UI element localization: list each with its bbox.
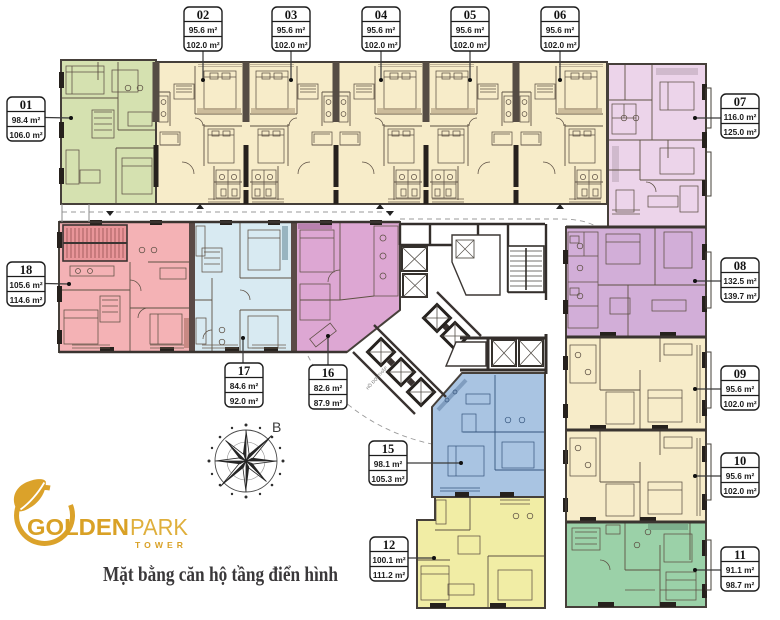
svg-text:125.0 m²: 125.0 m² bbox=[723, 127, 756, 137]
svg-text:102.0 m²: 102.0 m² bbox=[543, 40, 576, 50]
svg-text:02: 02 bbox=[197, 8, 210, 22]
svg-text:106.0 m²: 106.0 m² bbox=[9, 130, 42, 140]
svg-text:82.6 m²: 82.6 m² bbox=[314, 383, 343, 393]
svg-text:09: 09 bbox=[734, 367, 747, 381]
svg-text:102.0 m²: 102.0 m² bbox=[723, 486, 756, 496]
svg-text:102.0 m²: 102.0 m² bbox=[453, 40, 486, 50]
svg-text:98.1 m²: 98.1 m² bbox=[374, 459, 403, 469]
svg-text:102.0 m²: 102.0 m² bbox=[274, 40, 307, 50]
svg-text:100.1 m²: 100.1 m² bbox=[372, 555, 405, 565]
svg-text:87.9 m²: 87.9 m² bbox=[314, 398, 343, 408]
svg-text:91.1 m²: 91.1 m² bbox=[726, 565, 755, 575]
svg-text:95.6 m²: 95.6 m² bbox=[546, 25, 575, 35]
svg-text:95.6 m²: 95.6 m² bbox=[189, 25, 218, 35]
svg-text:B: B bbox=[272, 419, 281, 435]
svg-text:17: 17 bbox=[238, 364, 251, 378]
svg-text:95.6 m²: 95.6 m² bbox=[277, 25, 306, 35]
svg-text:15: 15 bbox=[382, 442, 395, 456]
svg-text:92.0 m²: 92.0 m² bbox=[230, 396, 259, 406]
svg-text:TOWER: TOWER bbox=[135, 540, 187, 550]
svg-text:07: 07 bbox=[734, 95, 747, 109]
svg-text:16: 16 bbox=[322, 366, 335, 380]
svg-text:10: 10 bbox=[734, 454, 747, 468]
svg-text:132.5 m²: 132.5 m² bbox=[723, 276, 756, 286]
svg-text:114.6 m²: 114.6 m² bbox=[10, 295, 43, 305]
svg-text:111.2 m²: 111.2 m² bbox=[373, 570, 406, 580]
svg-text:98.7 m²: 98.7 m² bbox=[726, 580, 755, 590]
svg-text:GOLDEN: GOLDEN bbox=[27, 514, 129, 540]
svg-text:95.6 m²: 95.6 m² bbox=[726, 471, 755, 481]
svg-text:PARK: PARK bbox=[130, 514, 189, 540]
svg-text:95.6 m²: 95.6 m² bbox=[456, 25, 485, 35]
svg-text:105.3 m²: 105.3 m² bbox=[371, 474, 404, 484]
svg-text:04: 04 bbox=[375, 8, 388, 22]
svg-text:18: 18 bbox=[20, 263, 33, 277]
svg-text:105.6 m²: 105.6 m² bbox=[9, 280, 42, 290]
svg-text:95.6 m²: 95.6 m² bbox=[726, 384, 755, 394]
svg-text:98.4 m²: 98.4 m² bbox=[12, 115, 41, 125]
svg-text:95.6 m²: 95.6 m² bbox=[367, 25, 396, 35]
svg-text:102.0 m²: 102.0 m² bbox=[364, 40, 397, 50]
svg-text:139.7 m²: 139.7 m² bbox=[723, 291, 756, 301]
svg-text:102.0 m²: 102.0 m² bbox=[723, 399, 756, 409]
svg-text:102.0 m²: 102.0 m² bbox=[186, 40, 219, 50]
svg-text:06: 06 bbox=[554, 8, 567, 22]
svg-text:08: 08 bbox=[734, 259, 747, 273]
svg-text:03: 03 bbox=[285, 8, 298, 22]
svg-text:12: 12 bbox=[383, 538, 396, 552]
svg-text:Mặt bằng căn hộ tầng điển hình: Mặt bằng căn hộ tầng điển hình bbox=[103, 562, 338, 586]
svg-text:84.6 m²: 84.6 m² bbox=[230, 381, 259, 391]
svg-text:11: 11 bbox=[734, 548, 746, 562]
svg-text:01: 01 bbox=[20, 98, 33, 112]
svg-text:116.0 m²: 116.0 m² bbox=[724, 112, 757, 122]
svg-text:05: 05 bbox=[464, 8, 477, 22]
